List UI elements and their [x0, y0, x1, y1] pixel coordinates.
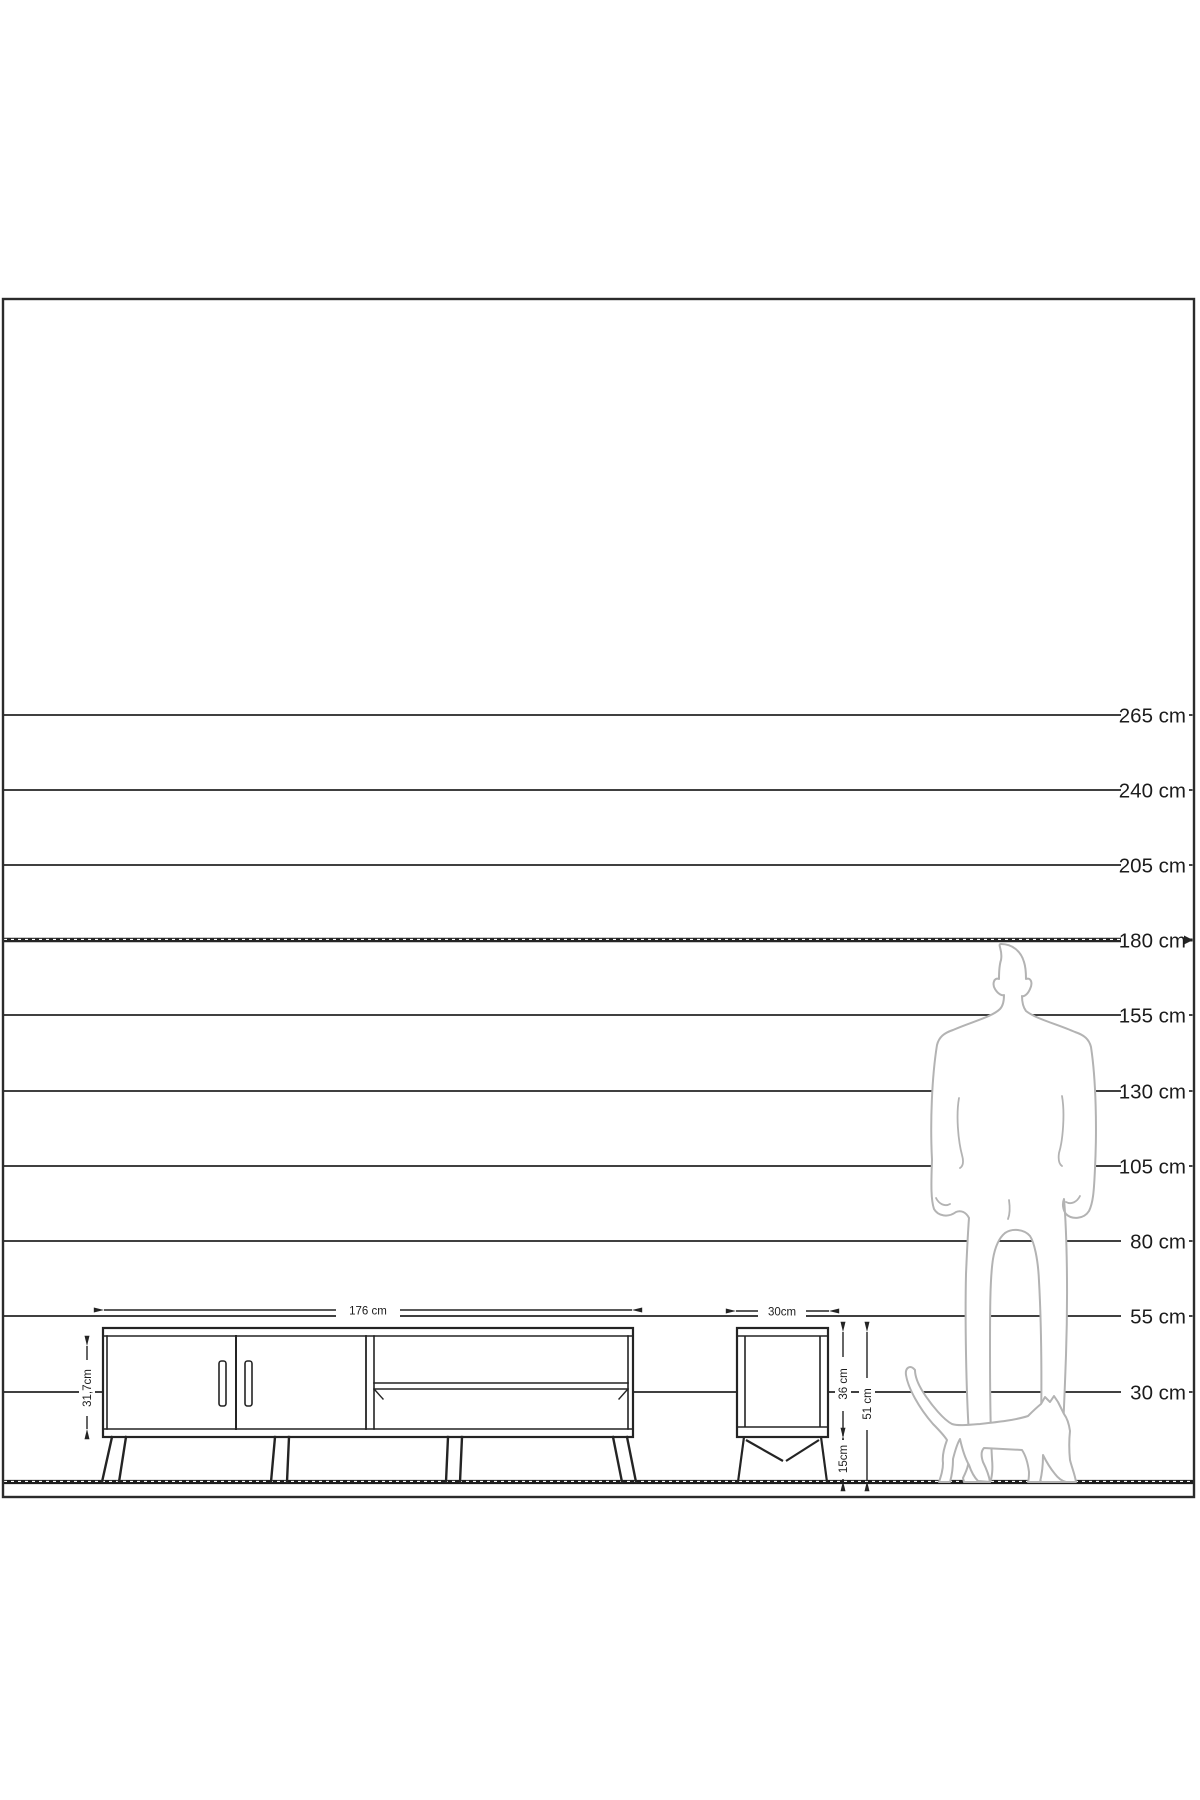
side-table-total-height-label: 51 cm — [862, 1388, 874, 1419]
door-handle — [219, 1361, 226, 1406]
door-handle — [245, 1361, 252, 1406]
tv-stand-legs — [102, 1437, 636, 1482]
scale-label-205: 205 cm — [1119, 854, 1186, 877]
scale-label-30: 30 cm — [1130, 1381, 1186, 1404]
side-table-body-height-label: 36 cm — [838, 1368, 850, 1399]
scale-line-205: 205 cm — [4, 854, 1193, 877]
scale-line-240: 240 cm — [4, 779, 1193, 802]
scale-line-55: 55 cm — [4, 1305, 1193, 1328]
side-table-width-label: 30cm — [768, 1307, 796, 1319]
side-table-leg-height-label: 15cm — [838, 1445, 850, 1473]
page: 265 cm240 cm205 cm180 cm155 cm130 cm105 … — [0, 0, 1200, 1800]
tv-stand-height-label: 31,7cm — [82, 1369, 94, 1407]
side-table — [737, 1328, 828, 1482]
scale-label-265: 265 cm — [1119, 704, 1186, 727]
scale-label-130: 130 cm — [1119, 1080, 1186, 1103]
side-table-legs — [738, 1437, 827, 1482]
scale-line-265: 265 cm — [4, 704, 1193, 727]
scale-label-180: 180 cm — [1119, 929, 1186, 952]
scale-label-80: 80 cm — [1130, 1230, 1186, 1253]
size-comparison-diagram: 265 cm240 cm205 cm180 cm155 cm130 cm105 … — [0, 0, 1200, 1800]
ground-line — [4, 1481, 1193, 1482]
scale-label-240: 240 cm — [1119, 779, 1186, 802]
man-silhouette — [931, 944, 1096, 1482]
tv-stand-width-label: 176 cm — [349, 1306, 387, 1318]
scale-label-55: 55 cm — [1130, 1305, 1186, 1328]
tv-stand — [102, 1328, 636, 1482]
scale-line-80: 80 cm — [4, 1230, 1193, 1253]
frame-border — [3, 299, 1194, 1497]
scale-label-105: 105 cm — [1119, 1155, 1186, 1178]
scale-label-155: 155 cm — [1119, 1004, 1186, 1027]
